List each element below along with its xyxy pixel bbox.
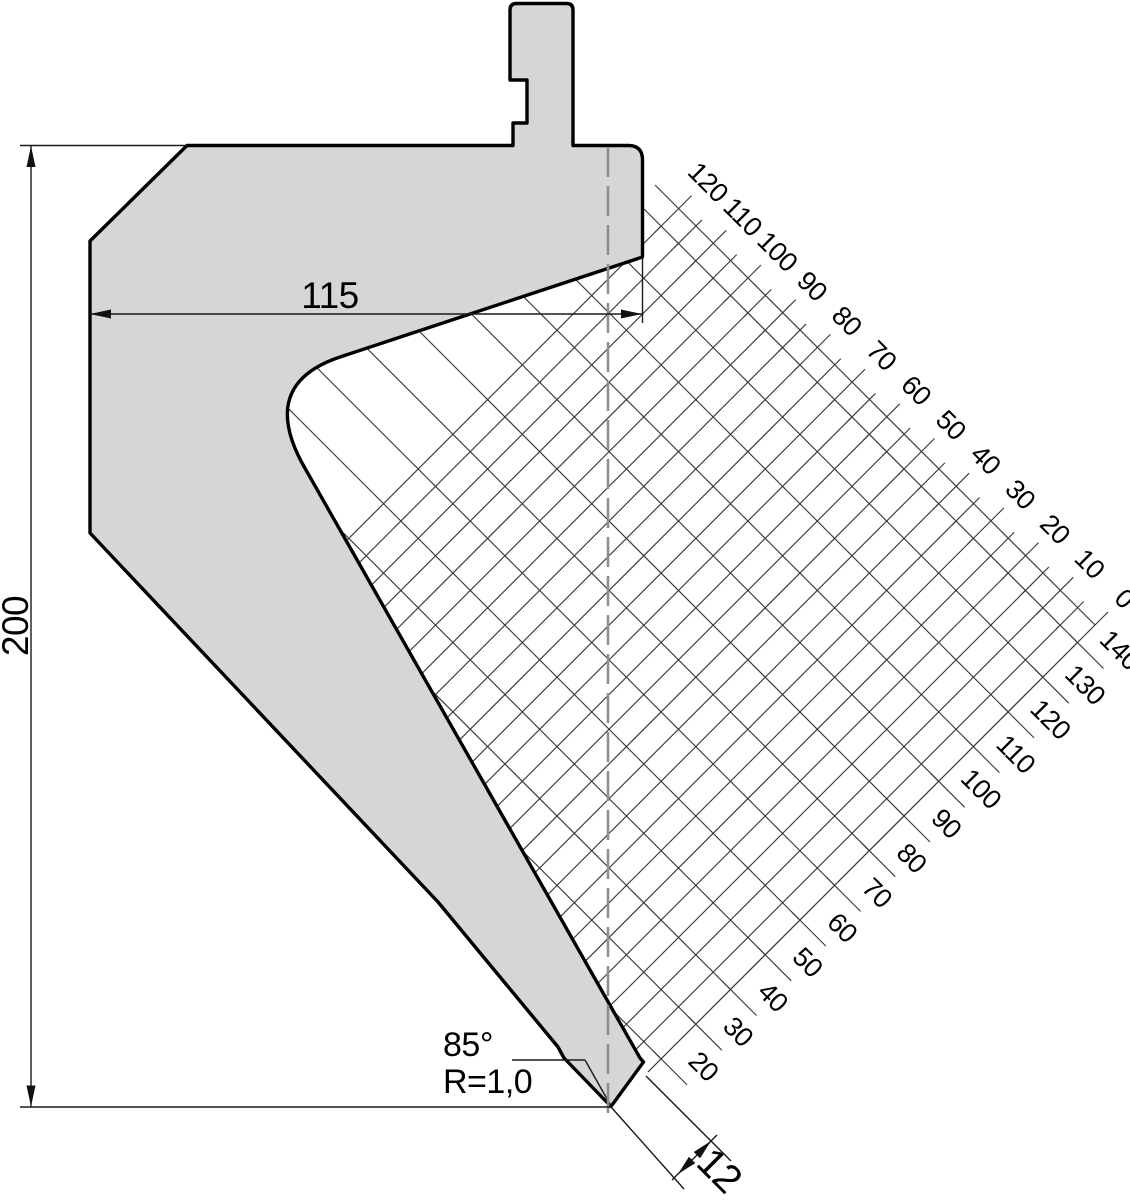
ne-scale-label: 50 <box>930 404 972 446</box>
se-scale-label: 50 <box>787 942 829 984</box>
ne-scale-tick <box>759 300 796 337</box>
se-scale-tick <box>723 982 757 1016</box>
ne-scale-label: 10 <box>1069 543 1111 585</box>
tip-radius-label: R=1,0 <box>443 1063 532 1101</box>
arrowhead-down-icon <box>27 1086 36 1107</box>
grid-scale-ticks <box>653 196 1108 1085</box>
punch-drawing-canvas: 0102030405060708090100110120140130120110… <box>0 0 1130 1200</box>
se-scale-tick <box>896 808 930 842</box>
ne-scale-label: 120 <box>682 156 734 208</box>
ne-scale-label: 40 <box>965 439 1007 481</box>
arrowhead-up-icon <box>27 146 36 167</box>
ne-scale-tick <box>794 334 831 371</box>
ne-scale-label: 90 <box>791 265 833 307</box>
se-scale-label: 140 <box>1094 624 1130 676</box>
ne-scale-tick <box>655 196 692 233</box>
ne-scale-tick <box>898 439 935 476</box>
ne-scale-tick <box>967 508 1004 545</box>
ne-scale-label: 100 <box>751 226 803 278</box>
se-scale-tick <box>653 1051 687 1085</box>
grid-fringe-line <box>655 185 1095 625</box>
se-scale-tick <box>861 843 895 877</box>
tip-angle-label: 85° <box>443 1026 493 1064</box>
ne-scale-label: 0 <box>1109 583 1130 614</box>
se-scale-label: 100 <box>955 763 1007 815</box>
ne-scale-tick <box>690 230 727 266</box>
se-scale-tick <box>792 912 826 946</box>
se-scale-tick <box>757 947 791 981</box>
se-scale-label: 90 <box>925 803 967 845</box>
se-scale-label: 20 <box>683 1046 725 1088</box>
ne-scale-label: 110 <box>717 192 768 243</box>
width-dimension-label: 115 <box>301 275 359 316</box>
ne-scale-label: 60 <box>895 370 937 412</box>
ne-scale-label: 80 <box>826 300 868 342</box>
se-scale-label: 60 <box>821 907 863 949</box>
height-dimension-label: 200 <box>0 596 36 656</box>
offset-dimension-label: 12 <box>688 1140 750 1200</box>
se-scale-tick <box>688 1016 722 1050</box>
tip-axis-extension-line <box>611 1107 684 1189</box>
ne-scale-tick <box>725 265 762 302</box>
se-scale-label: 40 <box>752 976 794 1018</box>
ne-scale-label: 30 <box>999 474 1041 516</box>
ne-scale-label: 70 <box>861 335 903 377</box>
ne-scale-tick <box>1037 577 1074 614</box>
se-scale-label: 70 <box>856 872 898 914</box>
technical-drawing-page: 0102030405060708090100110120140130120110… <box>0 0 1130 1200</box>
grid-ne-edge <box>644 209 1078 643</box>
ne-scale-tick <box>863 404 900 441</box>
se-scale-label: 120 <box>1024 694 1076 746</box>
grid-se-edge <box>648 643 1078 1073</box>
ne-scale-label: 20 <box>1034 508 1076 550</box>
se-scale-label: 30 <box>717 1011 759 1053</box>
se-scale-label: 80 <box>891 837 933 879</box>
ne-scale-tick <box>1002 543 1039 580</box>
ne-scale-tick <box>829 369 866 406</box>
se-scale-tick <box>827 877 861 911</box>
ne-scale-tick <box>933 473 970 510</box>
se-scale-label: 130 <box>1059 659 1111 711</box>
